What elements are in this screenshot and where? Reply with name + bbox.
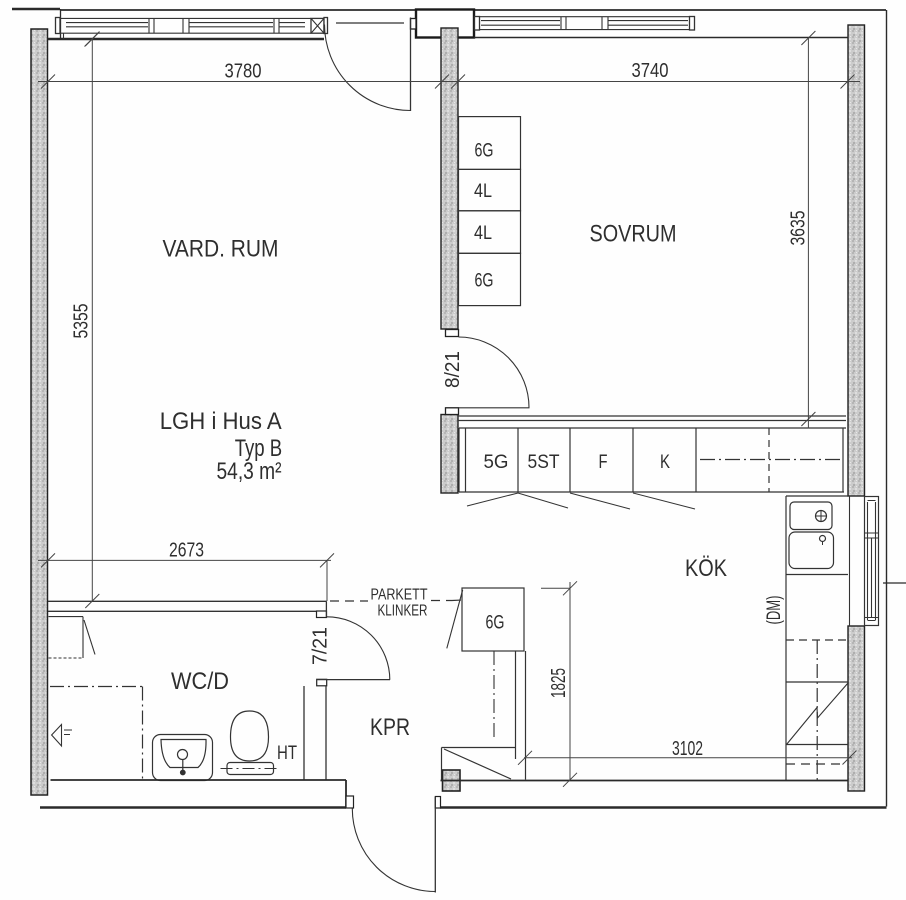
svg-text:SOVRUM: SOVRUM — [590, 221, 677, 248]
svg-text:5ST: 5ST — [528, 452, 560, 473]
svg-text:KPR: KPR — [370, 714, 410, 741]
svg-text:KLINKER: KLINKER — [378, 603, 428, 620]
svg-text:5355: 5355 — [71, 304, 93, 339]
svg-text:1825: 1825 — [548, 668, 570, 698]
svg-text:6G: 6G — [475, 271, 494, 292]
svg-text:54,3 m²: 54,3 m² — [217, 458, 282, 485]
svg-text:VARD. RUM: VARD. RUM — [163, 236, 279, 263]
svg-text:PARKETT: PARKETT — [371, 587, 428, 604]
svg-text:8/21: 8/21 — [442, 351, 464, 388]
svg-text:HT: HT — [277, 743, 297, 764]
svg-text:3740: 3740 — [632, 60, 669, 82]
svg-text:3102: 3102 — [672, 738, 703, 760]
svg-text:KÖK: KÖK — [685, 555, 727, 582]
svg-text:LGH i Hus A: LGH i Hus A — [160, 408, 282, 435]
svg-text:6G: 6G — [475, 141, 494, 162]
svg-text:3635: 3635 — [788, 211, 810, 246]
svg-text:7/21: 7/21 — [310, 627, 332, 665]
svg-text:2673: 2673 — [169, 540, 204, 562]
svg-text:4L: 4L — [474, 181, 492, 202]
svg-text:K: K — [660, 452, 670, 473]
svg-text:4L: 4L — [474, 223, 492, 244]
svg-text:6G: 6G — [486, 613, 505, 634]
svg-text:F: F — [599, 452, 608, 473]
svg-text:WC/D: WC/D — [171, 668, 229, 695]
svg-text:3780: 3780 — [225, 61, 262, 83]
svg-text:5G: 5G — [484, 452, 509, 473]
svg-text:(DM): (DM) — [764, 596, 785, 625]
